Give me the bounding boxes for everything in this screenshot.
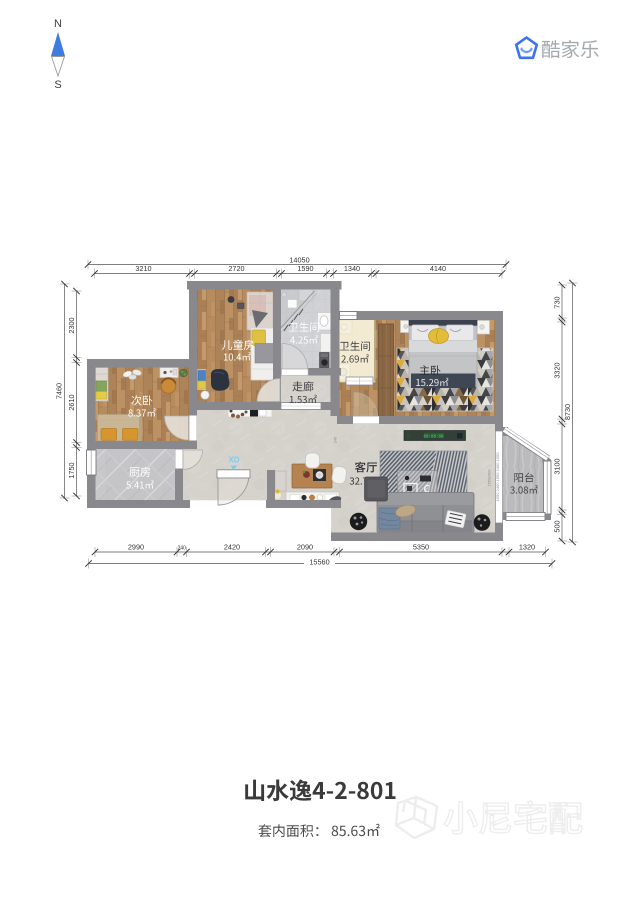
svg-text:1590: 1590 <box>297 264 313 273</box>
svg-text:1550 2400 1550 2400 1550: 1550 2400 1550 2400 1550 <box>495 452 500 502</box>
svg-text:1750: 1750 <box>67 462 76 478</box>
svg-text:2110: 2110 <box>196 311 201 321</box>
svg-text:3210: 3210 <box>135 264 151 273</box>
svg-text:2420: 2420 <box>224 543 240 552</box>
svg-text:2090: 2090 <box>297 543 313 552</box>
svg-text:2990: 2990 <box>128 543 144 552</box>
svg-text:XD: XD <box>228 456 239 465</box>
svg-text:240: 240 <box>334 437 338 443</box>
svg-text:2720: 2720 <box>228 264 244 273</box>
svg-text:15560: 15560 <box>309 558 329 567</box>
svg-text:730: 730 <box>552 296 561 308</box>
svg-text:7460: 7460 <box>55 383 64 399</box>
svg-text:1340: 1340 <box>344 264 360 273</box>
svg-text:4140: 4140 <box>430 264 446 273</box>
svg-text:1320: 1320 <box>519 543 535 552</box>
svg-text:3100: 3100 <box>552 458 561 474</box>
svg-text:S: S <box>54 79 61 91</box>
svg-text:2610: 2610 <box>67 394 76 410</box>
svg-text:15502400: 15502400 <box>488 470 492 487</box>
svg-text:14050: 14050 <box>289 256 309 265</box>
svg-text:8730: 8730 <box>563 404 572 420</box>
svg-text:240: 240 <box>178 546 187 552</box>
svg-text:N: N <box>54 18 62 30</box>
svg-text:3320: 3320 <box>552 362 561 378</box>
svg-text:5350: 5350 <box>413 543 429 552</box>
svg-text:88:88:88: 88:88:88 <box>423 435 444 439</box>
svg-text:2300: 2300 <box>67 317 76 333</box>
svg-text:500: 500 <box>552 520 561 532</box>
